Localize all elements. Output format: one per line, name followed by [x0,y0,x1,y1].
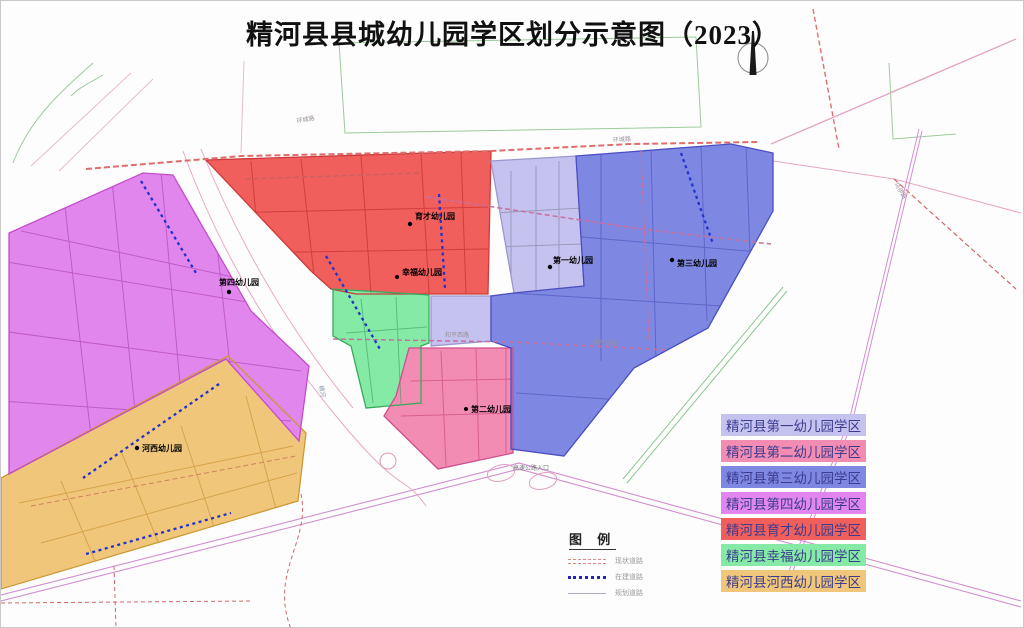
legend-item-district-2: 精河县第二幼儿园学区 [721,440,866,462]
kindergarten-dot [670,258,674,262]
map-key-title: 图 例 [569,529,616,550]
page-title: 精河县县城幼儿园学区划分示意图（2023） [1,13,1024,52]
kindergarten-dot [227,290,231,294]
kindergarten-label: 第二幼儿园 [471,404,511,414]
kindergarten-dot [395,275,399,279]
legend-item-label: 精河县育才幼儿园学区 [726,519,861,539]
kindergarten-label: 幸福幼儿园 [402,267,442,277]
legend-item-district-3: 精河县第三幼儿园学区 [721,466,866,488]
region-yucai [206,151,491,294]
legend-item-yucai: 精河县育才幼儿园学区 [721,518,866,540]
legend-item-label: 精河县第四幼儿园学区 [726,493,861,513]
construction-road-line-sample [568,576,606,579]
kindergarten-label: 第三幼儿园 [677,258,717,268]
legend-item-district-4: 精河县第四幼儿园学区 [721,492,866,514]
road-label: 精河 [317,385,327,398]
kindergarten-label: 育才幼儿园 [415,211,455,221]
kindergarten-dot [135,446,139,450]
map-key: 图 例 现状道路 在建道路 规划道路 [566,529,696,598]
map-key-label: 现状道路 [615,556,643,566]
map-page: 环城路 环城路 和平西路 和平支路 高速公路入口 乌伊路 精河 育才幼儿园 幸福… [0,0,1024,628]
legend-item-label: 精河县幸福幼儿园学区 [726,545,861,565]
kindergarten-disan: 第三幼儿园 [670,258,717,268]
kindergarten-label: 第四幼儿园 [219,277,259,287]
district-legend: 精河县第一幼儿园学区 精河县第二幼儿园学区 精河县第三幼儿园学区 精河县第四幼儿… [721,414,866,596]
legend-item-label: 精河县第一幼儿园学区 [726,415,861,435]
road-label: 高速公路入口 [513,464,549,472]
map-key-item-planned: 规划道路 [566,588,696,598]
legend-item-xingfu: 精河县幸福幼儿园学区 [721,544,866,566]
legend-item-label: 精河县第三幼儿园学区 [726,467,861,487]
map-canvas: 环城路 环城路 和平西路 和平支路 高速公路入口 乌伊路 精河 育才幼儿园 幸福… [1,1,1024,628]
existing-road-line-sample [568,559,606,564]
kindergarten-label: 河西幼儿园 [142,443,182,453]
region-diyi-a [491,156,584,293]
map-key-label: 规划道路 [615,588,643,598]
legend-item-district-1: 精河县第一幼儿园学区 [721,414,866,436]
legend-item-label: 精河县第二幼儿园学区 [726,441,861,461]
legend-item-hexi: 精河县河西幼儿园学区 [721,570,866,592]
map-key-label: 在建道路 [615,572,643,582]
kindergarten-label: 第一幼儿园 [553,255,593,265]
kindergarten-dot [464,407,468,411]
road-label: 和平西路 [445,331,469,339]
planned-road-line-sample [568,593,606,594]
road-label: 环城路 [296,114,315,125]
kindergarten-hexi: 河西幼儿园 [135,443,182,453]
kindergarten-dot [408,222,412,226]
map-key-item-existing: 现状道路 [566,556,696,566]
road-label: 环城路 [613,135,632,144]
map-key-item-construction: 在建道路 [566,572,696,582]
kindergarten-dot [548,265,552,269]
legend-item-label: 精河县河西幼儿园学区 [726,571,861,591]
kindergarten-dier: 第二幼儿园 [464,404,511,414]
